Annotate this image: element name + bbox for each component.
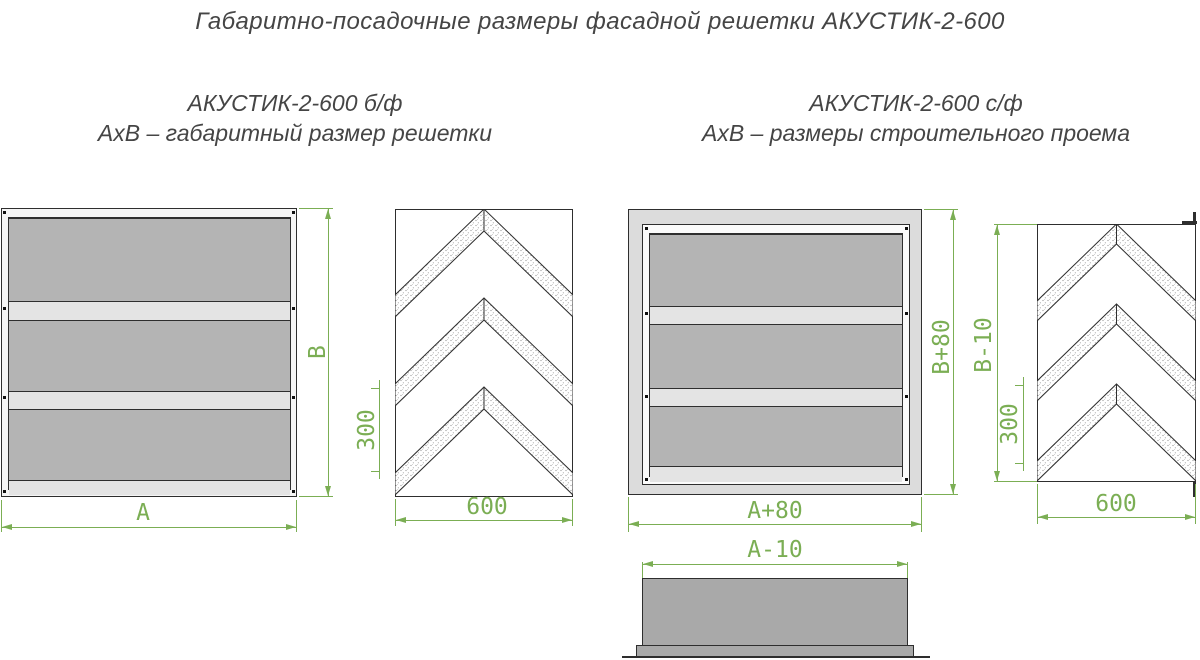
arrowhead-icon [911,521,921,527]
arrowhead-icon [950,484,956,494]
acoustic-panel [9,320,290,392]
extension-line [994,224,1037,225]
rivet-dot [645,312,648,315]
dim-label-600: 600 [447,495,527,519]
dim-label-b: В [306,312,330,392]
arrowhead-icon [1185,514,1195,520]
rivet-dot [292,211,295,214]
rivet-dot [645,395,648,398]
arrowhead-icon [2,524,12,530]
page-title: Габаритно-посадочные размеры фасадной ре… [0,8,1200,36]
left-grille-panel-area [8,217,291,490]
right-variant-note: АхВ – размеры строительного проема [632,118,1200,148]
left-variant-note: АхВ – габаритный размер решетки [15,118,575,148]
arrowhead-icon [994,225,1000,235]
rivet-dot [3,396,6,399]
louver-strip [650,467,902,482]
arrowhead-icon [994,471,1000,481]
rivet-dot [905,478,908,481]
dim-label-a10: А-10 [725,538,825,562]
rivet-dot [905,312,908,315]
acoustic-panel [9,409,290,481]
dim-tick [371,471,380,472]
louver-strip [9,302,290,320]
wall-mark [1193,212,1196,225]
louver-strip [9,481,290,495]
dim-line-a [1,527,297,528]
right-variant-name: АКУСТИК-2-600 с/ф [632,88,1200,118]
rivet-dot [645,478,648,481]
right-grille-panel-area [649,233,903,477]
right-grille-front-view [628,209,922,495]
arrowhead-icon [897,561,907,567]
dim-line-a80 [628,524,922,525]
arrowhead-icon [1038,514,1048,520]
right-section-heading: АКУСТИК-2-600 с/ф АхВ – размеры строител… [632,88,1200,148]
acoustic-panel [9,218,290,302]
acoustic-panel [650,324,902,389]
rivet-dot [905,395,908,398]
rivet-dot [3,490,6,493]
extension-line [921,497,922,532]
dim-label-a: А [103,501,183,525]
dim-label-600: 600 [1076,492,1156,516]
dim-label-300: 300 [355,390,379,470]
wall-line [622,656,930,658]
left-section-heading: АКУСТИК-2-600 б/ф АхВ – габаритный разме… [15,88,575,148]
rivet-dot [905,227,908,230]
dim-tick [371,388,380,389]
grille-body-top-view [642,578,908,646]
extension-line [1195,484,1196,524]
acoustic-panel [650,406,902,467]
arrowhead-icon [325,209,331,219]
dim-label-b80: В+80 [930,297,954,397]
right-grille-inner-frame [642,224,910,485]
arrowhead-icon [950,210,956,220]
arrowhead-icon [562,517,572,523]
dim-line-600 [395,520,573,521]
left-variant-name: АКУСТИК-2-600 б/ф [15,88,575,118]
louver-strip [650,389,902,406]
rivet-dot [3,307,6,310]
extension-line [572,499,573,526]
dim-label-300: 300 [998,384,1022,464]
rivet-dot [292,307,295,310]
extension-line [994,481,1037,482]
rivet-dot [292,396,295,399]
arrowhead-icon [643,561,653,567]
acoustic-panel [650,234,902,307]
arrowhead-icon [286,524,296,530]
rivet-dot [292,490,295,493]
arrowhead-icon [629,521,639,527]
rivet-dot [645,227,648,230]
dim-line-600 [1037,517,1196,518]
right-grille-side-view [1037,224,1196,482]
arrowhead-icon [396,517,406,523]
rivet-dot [3,211,6,214]
left-grille-side-view [395,209,573,497]
louver-strip [9,392,290,409]
dim-label-b10: В-10 [972,295,996,395]
arrowhead-icon [325,486,331,496]
dim-line-300 [1023,377,1024,471]
left-grille-front-view [1,208,297,497]
dim-line-a10 [642,564,908,565]
louver-strip [650,307,902,324]
dim-label-a80: А+80 [725,499,825,523]
drawing-canvas: Габаритно-посадочные размеры фасадной ре… [0,0,1200,660]
